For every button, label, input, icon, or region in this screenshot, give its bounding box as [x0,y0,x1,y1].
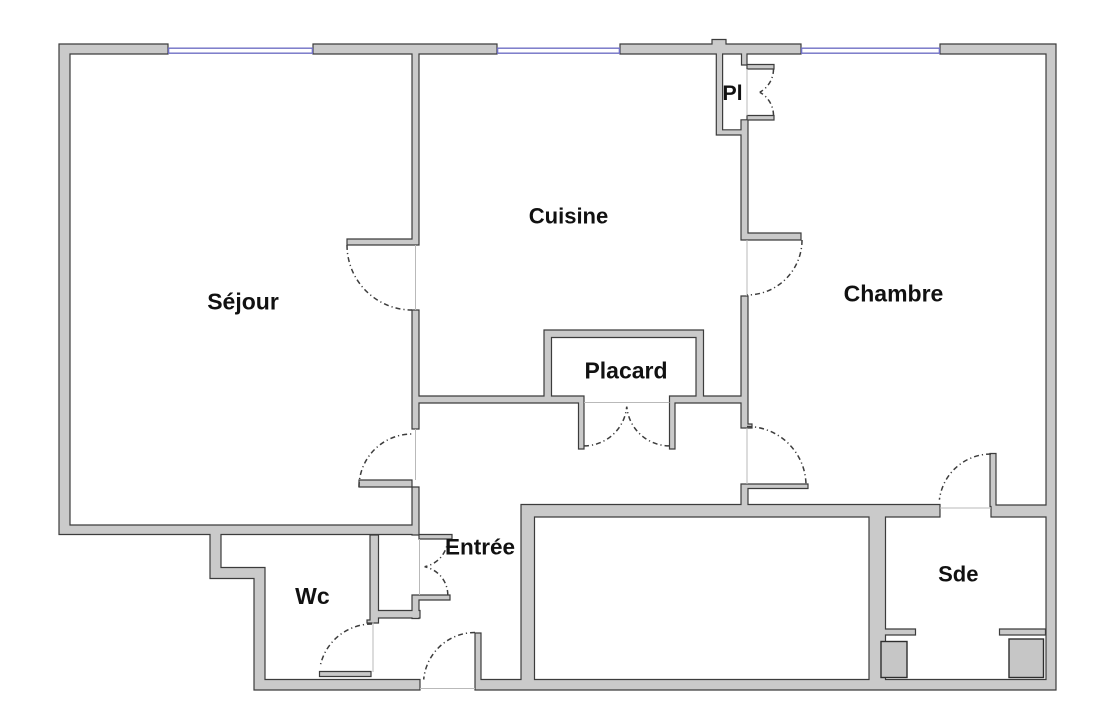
svg-text:Sde: Sde [938,561,978,586]
svg-text:Pl: Pl [722,81,742,105]
svg-text:Entrée: Entrée [445,534,515,559]
svg-text:Cuisine: Cuisine [529,204,608,229]
svg-text:Séjour: Séjour [207,288,279,314]
svg-text:Chambre: Chambre [844,280,944,306]
svg-text:Wc: Wc [295,583,330,609]
svg-text:Placard: Placard [584,358,667,384]
